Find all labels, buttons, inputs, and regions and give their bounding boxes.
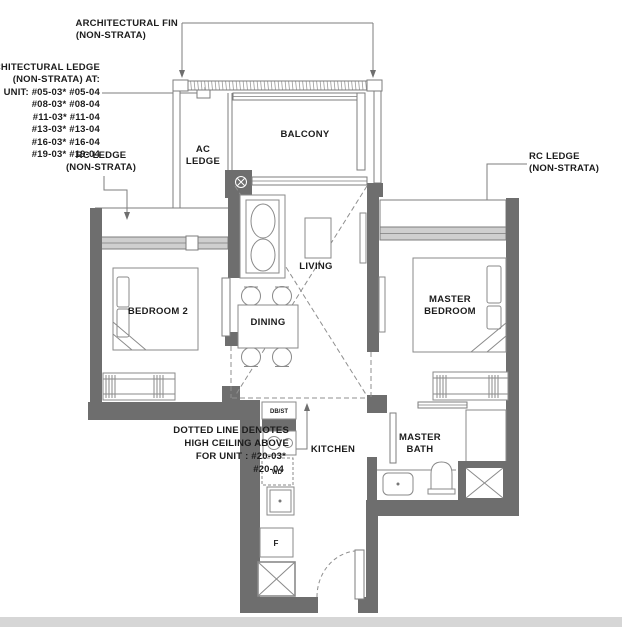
room-label-balcony: BALCONY (280, 129, 329, 140)
room-label-ac-ledge-2: LEDGE (186, 156, 220, 167)
master-bath-sliding-door (418, 402, 467, 408)
master-tv-console (379, 277, 385, 332)
arch-ledge-line5: #11-03* #11-04 (33, 112, 101, 123)
master-window (380, 227, 506, 240)
balcony-sliding-door (252, 177, 367, 185)
page-edge-band (0, 617, 622, 627)
architectural-fin-left (173, 80, 188, 91)
arch-ledge-line1: ARCHITECTURAL LEDGE (0, 62, 100, 73)
floor-plan-drawing: ARCHITECTURAL FIN (NON-STRATA) ARCHITECT… (0, 0, 622, 627)
rc-ledge-left-leader-line (104, 176, 130, 220)
note-line2: HIGH CEILING ABOVE (184, 438, 289, 449)
annotation-architectural-ledge: ARCHITECTURAL LEDGE (NON-STRATA) AT: UNI… (0, 62, 101, 160)
rc-left-line1: RC LEDGE (76, 150, 127, 161)
arch-ledge-line7: #16-03* #16-04 (32, 137, 101, 148)
room-label-master-bath-2: BATH (407, 444, 434, 455)
bedroom2-window (100, 236, 228, 250)
master-wardrobe (433, 372, 508, 400)
fixture-label-wd: WD (272, 470, 283, 476)
arch-ledge-line6: #13-03* #13-04 (32, 124, 101, 135)
room-label-dining: DINING (250, 317, 285, 328)
arch-ledge-line2: (NON-STRATA) AT: (13, 74, 100, 85)
kitchen-shaft (258, 562, 295, 596)
note-line1: DOTTED LINE DENOTES (173, 425, 289, 436)
room-label-master-bedroom-1: MASTER (429, 294, 471, 305)
annotation-rc-ledge-right: RC LEDGE (NON-STRATA) (529, 151, 599, 174)
living-tv-console (360, 213, 366, 263)
room-label-bedroom2: BEDROOM 2 (128, 306, 188, 317)
room-label-master-bedroom-2: BEDROOM (424, 306, 476, 317)
fin-label-line2: (NON-STRATA) (76, 30, 146, 41)
arch-ledge-line4: #08-03* #08-04 (32, 99, 101, 110)
bath-shower (466, 410, 506, 463)
arch-ledge-line3: UNIT: #05-03* #05-04 (4, 87, 101, 98)
living-sofa (240, 195, 285, 278)
master-bed (413, 258, 506, 352)
annotation-architectural-fin: ARCHITECTURAL FIN (NON-STRATA) (76, 18, 178, 41)
room-label-ac-ledge-1: AC (196, 144, 210, 155)
bath-shaft (458, 461, 510, 505)
room-label-kitchen: KITCHEN (311, 444, 355, 455)
living-coffee-table (305, 218, 331, 258)
master-bath-door (390, 413, 396, 463)
kitchen-sink (267, 487, 294, 515)
floor-plan-page: ARCHITECTURAL FIN (NON-STRATA) ARCHITECT… (0, 0, 622, 627)
bath-toilet (428, 462, 455, 494)
rc-right-line1: RC LEDGE (529, 151, 580, 162)
bedroom2-rc-ledge (95, 208, 228, 237)
bedroom2-door (222, 278, 230, 336)
fixture-label-fridge: F (274, 539, 279, 548)
note-line3: FOR UNIT : #20-03* (196, 451, 286, 462)
entry-door (317, 550, 364, 599)
room-label-living: LIVING (299, 261, 332, 272)
fin-label-line1: ARCHITECTURAL FIN (76, 18, 178, 29)
rc-right-line2: (NON-STRATA) (529, 163, 599, 174)
ac-ledge-wall (173, 91, 180, 208)
bedroom2-wardrobe (103, 373, 175, 400)
master-rc-ledge (380, 200, 506, 227)
fin-leader-line (179, 23, 376, 78)
annotation-rc-ledge-left: RC LEDGE (NON-STRATA) (66, 150, 136, 173)
room-label-master-bath-1: MASTER (399, 432, 441, 443)
fixture-label-db-st: DB/ST (270, 409, 288, 415)
rc-left-line2: (NON-STRATA) (66, 162, 136, 173)
architectural-fin-right (367, 80, 382, 91)
